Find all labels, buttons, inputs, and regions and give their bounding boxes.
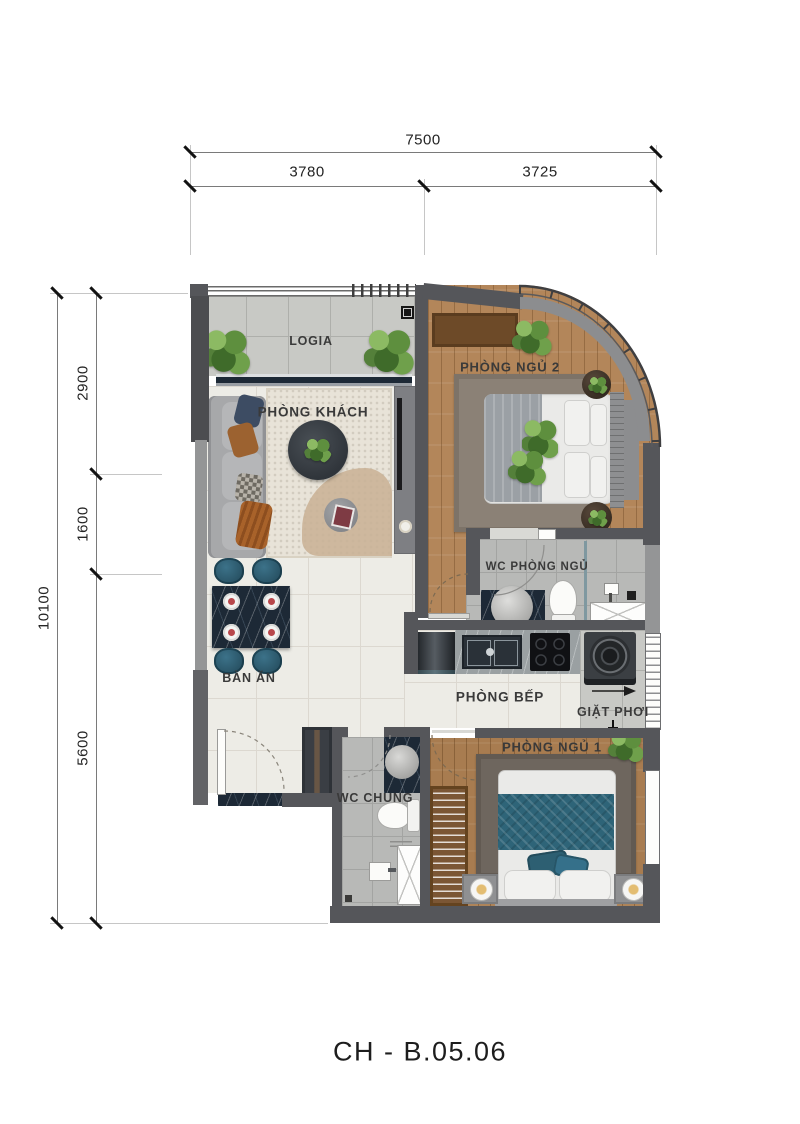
bedroom1-pillow bbox=[504, 870, 556, 902]
plan-title: CH - B.05.06 bbox=[333, 1037, 507, 1068]
extension-line bbox=[190, 145, 191, 255]
place-setting bbox=[263, 593, 280, 610]
bedroom2-pillow bbox=[564, 400, 590, 446]
cooktop bbox=[530, 633, 570, 671]
bedroom2-entry-nook-floor bbox=[428, 539, 466, 618]
dimension-left-seg2: 1600 bbox=[75, 502, 92, 545]
place-setting bbox=[223, 593, 240, 610]
kitchen-label: PHÒNG BẾP bbox=[456, 690, 544, 705]
extension-line bbox=[90, 574, 162, 575]
washing-machine bbox=[584, 632, 636, 685]
wall-nook-right bbox=[466, 533, 480, 595]
wc-shared-toilet-bowl bbox=[377, 802, 410, 829]
logia-floor-drain bbox=[401, 306, 414, 319]
wall-kitchen-jog bbox=[404, 612, 418, 674]
living-room-label: PHÒNG KHÁCH bbox=[258, 405, 369, 420]
dimension-left-segment-line bbox=[96, 293, 97, 923]
dimension-top-total-line bbox=[190, 152, 656, 153]
wc-shared-sink bbox=[385, 745, 419, 779]
bedroom2-nightstand-plant bbox=[588, 375, 608, 395]
dimension-top-seg2: 3725 bbox=[518, 164, 561, 181]
wall-bottom bbox=[330, 906, 660, 923]
bedroom2-pillow bbox=[590, 456, 607, 498]
logia-railing-balusters bbox=[352, 284, 416, 297]
wc-master-door-leaf bbox=[538, 529, 556, 540]
logia-plant-left bbox=[202, 324, 250, 378]
wc-shared-small-sink-tap bbox=[388, 868, 396, 872]
wall-bedroom1-top bbox=[475, 728, 660, 738]
extension-line bbox=[90, 474, 162, 475]
wall-wc-shared-left bbox=[332, 727, 342, 923]
bedroom2-pillow bbox=[590, 404, 607, 446]
bedroom1-label: PHÒNG NGỦ 1 bbox=[502, 740, 602, 755]
shower-glass-partition bbox=[584, 541, 587, 621]
extension-line bbox=[50, 923, 328, 924]
laundry-label: GIẶT PHƠI bbox=[577, 705, 649, 719]
wc-shared-label: WC CHUNG bbox=[337, 791, 414, 805]
logia-label: LOGIA bbox=[289, 334, 333, 348]
dimension-left-total: 10100 bbox=[36, 582, 53, 634]
bedroom2-bed-plant-decor bbox=[508, 446, 546, 488]
wall-entry-bottom bbox=[282, 793, 334, 807]
entry-door-leaf bbox=[217, 729, 226, 795]
dimension-left-seg3: 5600 bbox=[75, 726, 92, 769]
dining-label: BÀN ĂN bbox=[222, 671, 275, 685]
wc-master-door-opening bbox=[490, 528, 538, 539]
dimension-top-total: 7500 bbox=[401, 132, 444, 149]
wc-shared-shower-tray bbox=[397, 845, 422, 905]
wall-left-upper bbox=[191, 296, 209, 442]
dining-table bbox=[212, 586, 290, 648]
bedroom1-lamp bbox=[470, 878, 493, 901]
wc-master-label: WC PHÒNG NGỦ bbox=[486, 561, 589, 573]
extension-line bbox=[656, 145, 657, 255]
bedroom1-door-threshold bbox=[432, 730, 475, 733]
dining-chair bbox=[252, 558, 282, 584]
extension-line bbox=[50, 293, 188, 294]
shower-accessory bbox=[627, 591, 636, 600]
entry-threshold bbox=[218, 793, 282, 806]
console-decor bbox=[399, 520, 412, 533]
sofa-pillow-check bbox=[234, 472, 264, 503]
wall-left-lower bbox=[193, 670, 208, 805]
bedroom1-blanket bbox=[498, 794, 614, 850]
tv-screen bbox=[397, 398, 402, 490]
fridge bbox=[418, 632, 455, 674]
dimension-left-seg1: 2900 bbox=[75, 361, 92, 404]
wall-kitchen-top bbox=[417, 620, 646, 630]
dimension-top-seg1: 3780 bbox=[285, 164, 328, 181]
place-setting bbox=[263, 624, 280, 641]
wc-master-toilet-bowl bbox=[549, 580, 577, 618]
wall-wc-shared-bedroom1 bbox=[420, 727, 430, 906]
wall-center-vertical bbox=[415, 285, 428, 618]
wall-right-upper bbox=[643, 443, 660, 545]
dimension-left-total-line bbox=[57, 293, 58, 923]
bedroom2-wardrobe bbox=[432, 313, 518, 347]
logia-plant-right bbox=[364, 324, 414, 378]
place-setting bbox=[223, 624, 240, 641]
bedroom2-pillow bbox=[564, 452, 590, 498]
shower-fixture-stem bbox=[609, 593, 612, 602]
wall-right-wc bbox=[645, 545, 660, 633]
kitchen-sink-basin bbox=[494, 640, 518, 666]
floor-plan-sheet: 7500 3780 3725 10100 2900 1600 5600 bbox=[0, 0, 800, 1124]
extension-line bbox=[424, 179, 425, 255]
bedroom1-lamp bbox=[622, 878, 645, 901]
bedroom1-pillow bbox=[559, 870, 611, 902]
floor-drain bbox=[345, 895, 352, 902]
bedroom2-headboard bbox=[610, 392, 624, 508]
wall-wc-shared-top-a bbox=[332, 727, 348, 737]
bedroom2-label: PHÒNG NGỦ 2 bbox=[460, 360, 560, 375]
bedroom1-window bbox=[645, 770, 660, 868]
coffee-table-centerpiece bbox=[304, 436, 332, 464]
wall-left-middle bbox=[195, 440, 207, 672]
dining-chair bbox=[214, 558, 244, 584]
bedroom2-door-threshold bbox=[428, 613, 470, 619]
bedroom2-plant bbox=[512, 316, 552, 358]
curved-wall-backdrop bbox=[624, 400, 639, 500]
bedroom2-nightstand-plant bbox=[588, 508, 608, 528]
kitchen-faucet bbox=[486, 648, 494, 656]
